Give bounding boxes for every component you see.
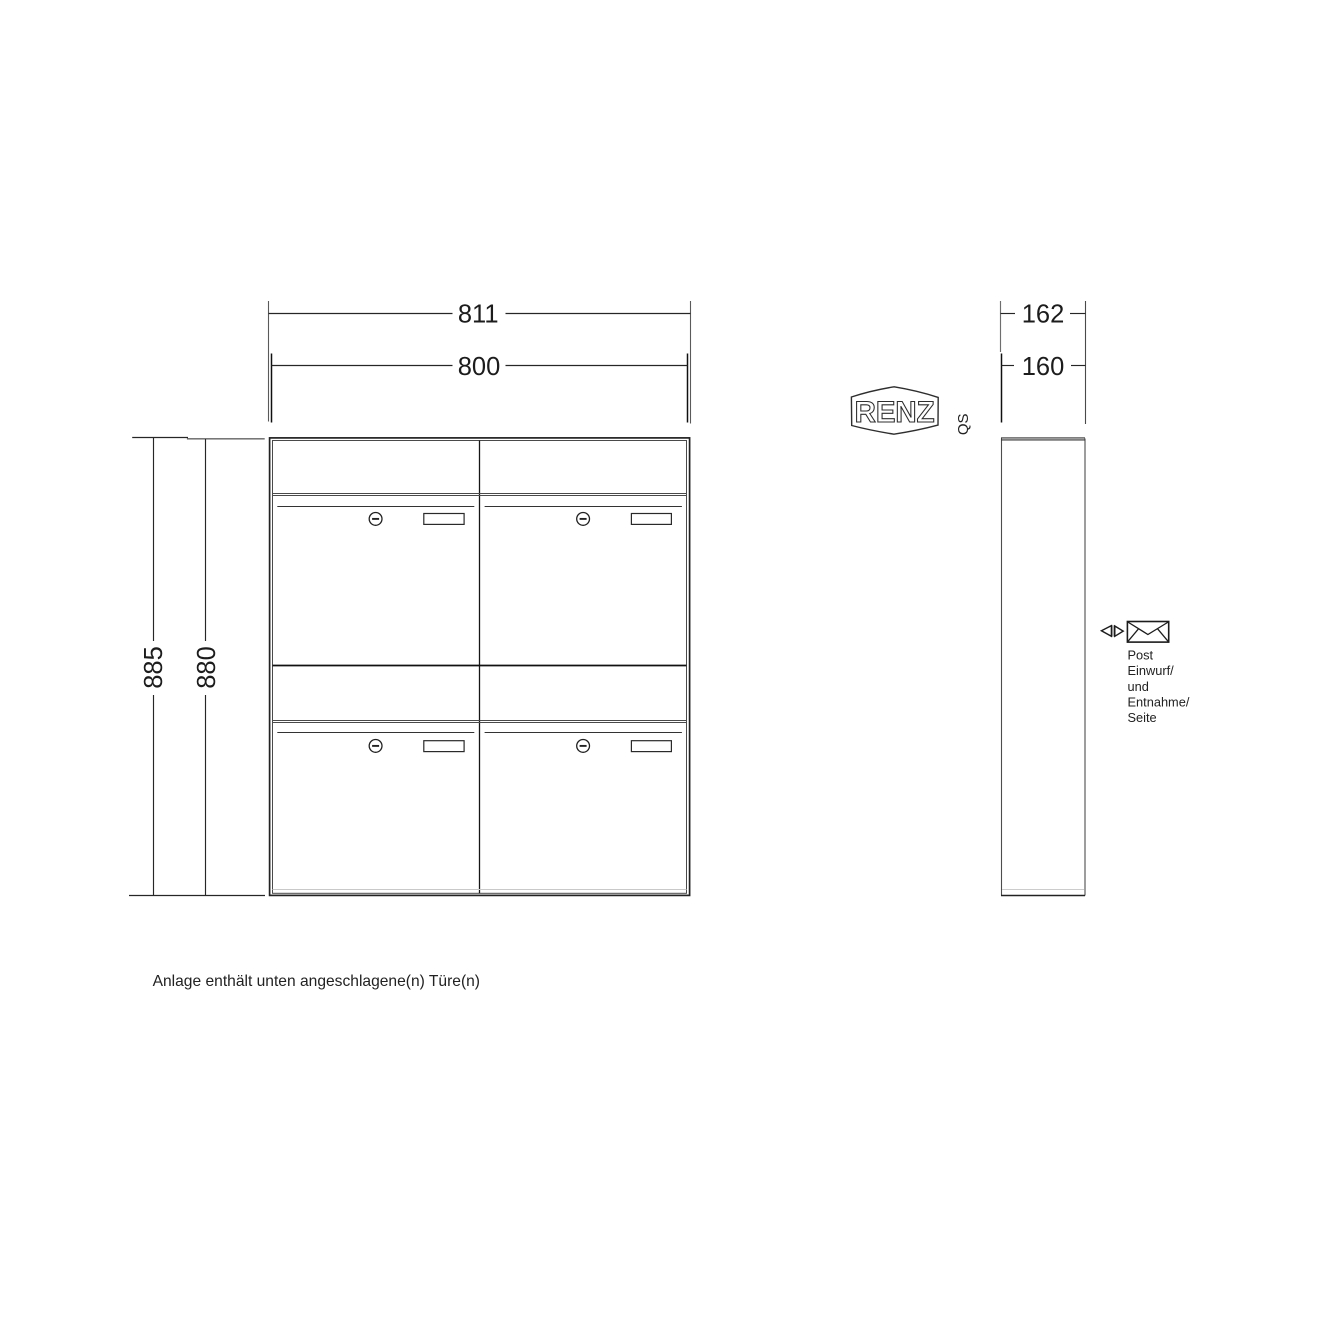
svg-text:162: 162 (1022, 300, 1065, 328)
svg-text:Seite: Seite (1128, 710, 1157, 725)
svg-text:RENZ: RENZ (855, 396, 935, 429)
svg-text:Entnahme/: Entnahme/ (1128, 695, 1190, 710)
svg-text:Anlage enthält unten angeschla: Anlage enthält unten angeschlagene(n) Tü… (153, 973, 480, 990)
svg-text:und: und (1128, 679, 1149, 694)
svg-text:880: 880 (193, 646, 221, 689)
svg-text:885: 885 (140, 646, 168, 689)
svg-text:QS: QS (955, 413, 972, 435)
svg-text:811: 811 (458, 300, 499, 328)
svg-text:Einwurf/: Einwurf/ (1128, 663, 1175, 678)
svg-text:Post: Post (1128, 647, 1154, 662)
svg-text:160: 160 (1022, 353, 1065, 381)
svg-text:800: 800 (458, 353, 501, 381)
